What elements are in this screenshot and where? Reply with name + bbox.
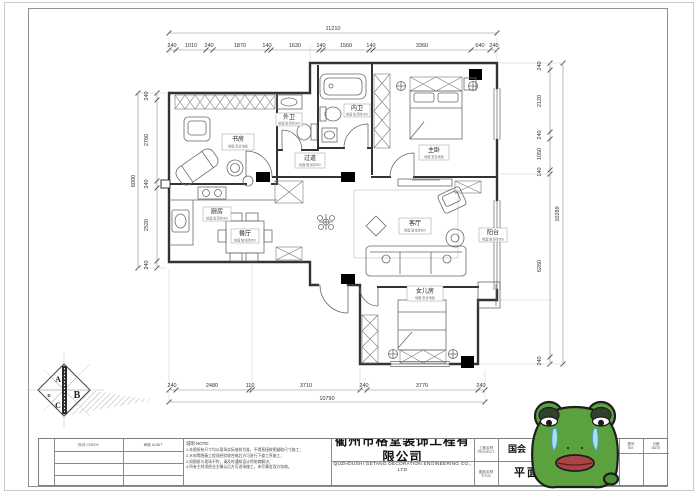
axis-zipper [62,366,67,414]
svg-text:240: 240 [204,43,213,49]
svg-text:1050: 1050 [537,148,543,160]
svg-text:1870: 1870 [234,43,246,49]
title-label-cell: 图纸名称 TITLE [474,461,498,487]
dimension-text-right: 10289 240 2120 240 1050 140 6260 240 [537,61,561,365]
svg-text:地面:复合地板: 地面:复合地板 [415,295,436,300]
floor-plan: 11210 240 1010 240 1870 140 1630 140 156… [0,0,700,495]
dimension-text-top: 11210 240 1010 240 1870 140 1630 140 156… [167,26,498,49]
svg-text:女儿房: 女儿房 [416,287,434,295]
room-label-hallway: 过道 地面:玻化砖800 [295,153,325,168]
dim-top-total: 11210 [326,26,341,32]
project-label-cell: 工程名称 PROJECT [474,439,498,461]
titleblock-check-label: 校对 CHECK [54,439,123,451]
daughter-bed [398,300,446,350]
svg-text:140: 140 [262,43,271,49]
dimension-text-left: 6000 240 2760 240 2520 240 [131,91,150,269]
meta-date-cell: 日期DATE [643,439,669,453]
svg-text:地面:防滑砖300: 地面:防滑砖300 [206,216,228,221]
drawing-sheet: 11210 240 1010 240 1870 140 1630 140 156… [0,0,700,495]
doors [246,124,414,313]
svg-text:2480: 2480 [206,383,218,389]
kitchen-stove [198,187,226,199]
study-chaise [173,146,221,188]
svg-text:地面:防滑砖300: 地面:防滑砖300 [346,112,368,117]
meta-dwg-cell: 图别DWG [595,439,619,453]
svg-text:240: 240 [359,383,368,389]
inner-bath-door [344,124,368,148]
room-label-master: 主卧 地面:复合地板 [419,145,449,160]
dimension-chain-top [167,31,500,91]
svg-text:阳台: 阳台 [487,229,499,237]
svg-text:厨房: 厨房 [211,208,223,216]
svg-text:240: 240 [476,383,485,389]
svg-text:书房: 书房 [232,135,244,143]
master-bed [410,91,462,139]
master-door [390,153,414,177]
study-round-table [227,160,243,176]
svg-text:内卫: 内卫 [351,104,363,112]
room-label-kitchen: 厨房 地面:防滑砖300 [203,207,231,221]
svg-text:餐厅: 餐厅 [239,230,251,238]
daughter-door [360,288,378,306]
svg-text:240: 240 [167,383,176,389]
axis-letter-a: A [55,375,61,384]
svg-text:240: 240 [144,179,150,188]
drawing-title-value: 平面布置图 [498,461,595,487]
title-block: 校对 CHECK 审核 AUDIT 说明 NOTE: 1.本图所有尺寸均以现场实… [38,438,668,486]
company-name-en: QUZHOUSHI GETANG DECORATION ENGINEERING … [331,461,474,475]
room-label-daughter: 女儿房 地面:复合地板 [407,286,443,301]
notes-block: 说明 NOTE: 1.本图所有尺寸均以现场实际放样为准，不得直接按图量取尺寸施工… [183,439,337,490]
room-label-dining: 餐厅 地面:玻化砖800 [231,229,259,243]
titleblock-audit-label: 审核 AUDIT [123,439,183,451]
svg-text:3360: 3360 [416,43,428,49]
svg-text:240: 240 [537,356,543,365]
project-name-value: 国会 [498,439,595,461]
svg-text:240: 240 [167,43,176,49]
svg-text:240: 240 [489,43,498,49]
svg-text:2120: 2120 [537,95,543,107]
svg-text:1010: 1010 [185,43,197,49]
axis-badge: A B C D [26,352,152,428]
study-armchair [184,117,210,141]
axis-letter-c: C [55,401,61,410]
entry-door [320,285,348,313]
svg-text:3710: 3710 [300,383,312,389]
axis-letter-b: B [74,390,81,401]
svg-text:240: 240 [144,91,150,100]
svg-text:6260: 6260 [537,260,543,272]
svg-text:地面:复合地板: 地面:复合地板 [228,144,249,149]
svg-text:6000: 6000 [131,175,137,187]
svg-text:140: 140 [366,43,375,49]
living-sofa [366,246,466,276]
plant [318,214,335,230]
svg-text:地面:复合地板: 地面:复合地板 [424,154,445,159]
room-label-balcony: 阳台 地面:防滑砖300 [479,228,507,242]
svg-text:地面:玻化砖800: 地面:玻化砖800 [404,228,426,233]
room-label-living: 客厅 地面:玻化砖800 [399,218,431,234]
svg-text:主卧: 主卧 [428,146,440,154]
company-name-cn: 衢州市格堂装饰工程有限公司 [331,439,474,461]
room-label-inner-bath: 内卫 地面:防滑砖300 [344,104,370,117]
svg-text:地面:防滑砖300: 地面:防滑砖300 [278,121,300,126]
note-header: 说明 NOTE: [186,441,334,448]
study-stool [243,176,253,186]
svg-text:1560: 1560 [340,43,352,49]
room-labels: 书房 地面:复合地板 外卫 地面:防滑砖300 内卫 地面:防滑砖300 过道 … [203,104,507,301]
svg-text:地面:防滑砖300: 地面:防滑砖300 [482,237,504,242]
svg-text:110: 110 [246,383,255,389]
svg-text:外卫: 外卫 [283,113,295,121]
svg-text:240: 240 [144,260,150,269]
svg-text:2760: 2760 [144,134,150,146]
svg-text:10790: 10790 [319,396,334,402]
kitchen-sink [172,210,189,232]
meta-no-cell: 图号NO. [619,439,643,453]
side-table [446,229,464,247]
svg-text:过道: 过道 [304,154,316,162]
svg-text:140: 140 [537,167,543,176]
living-stool [366,216,386,236]
svg-text:640: 640 [475,43,484,49]
interior-walls [169,63,497,287]
svg-text:240: 240 [537,61,543,70]
outer-bath-door [282,130,302,150]
svg-text:240: 240 [537,130,543,139]
svg-text:地面:玻化砖800: 地面:玻化砖800 [234,238,256,243]
note-line: 4.所有主材须经业主确认后方可进场施工，未尽事宜双方协商。 [186,465,334,471]
svg-text:3770: 3770 [416,383,428,389]
svg-text:2520: 2520 [144,219,150,231]
svg-text:地面:玻化砖800: 地面:玻化砖800 [299,162,321,167]
svg-text:140: 140 [316,43,325,49]
svg-text:10289: 10289 [555,206,561,221]
svg-text:客厅: 客厅 [409,219,421,227]
wall-pier [161,180,170,188]
room-label-outer-bath: 外卫 地面:防滑砖300 [276,113,302,126]
svg-text:1630: 1630 [289,43,301,49]
dimension-text-bottom: 10790 240 2480 110 3710 240 3770 240 [167,383,485,402]
room-label-study: 书房 地面:复合地板 [222,134,254,150]
